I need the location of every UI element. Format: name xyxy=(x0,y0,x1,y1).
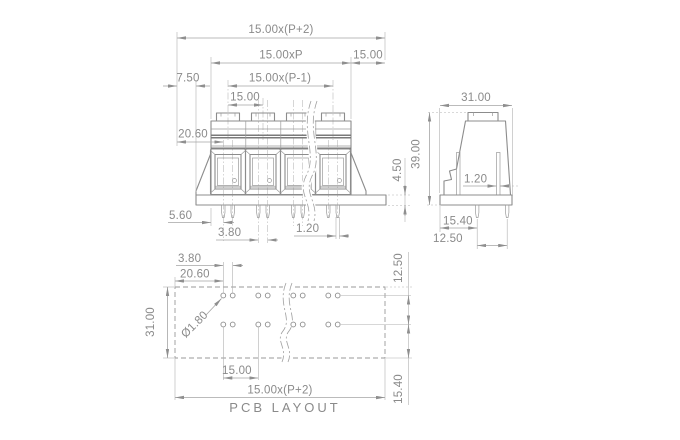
dim-pcb-depth: 31.00 xyxy=(145,307,157,337)
sheet-background xyxy=(0,0,680,440)
dim-pcb-hole-pair-spacing: 3.80 xyxy=(178,253,201,265)
dim-front-pin-pair-spacing: 3.80 xyxy=(218,227,241,239)
dim-front-pin-width: 1.20 xyxy=(296,223,319,235)
drawing-sheet: 15.00x(P+2) 15.00xP 15.00 7.50 15.00x(P-… xyxy=(0,0,680,440)
dim-pcb-row-to-edge: 15.40 xyxy=(393,374,405,404)
dim-side-pin-to-front: 12.50 xyxy=(433,233,463,245)
dim-front-overall-width: 15.00x(P+2) xyxy=(248,24,313,36)
dim-pcb-row-spacing: 12.50 xyxy=(393,253,405,283)
dim-front-base-offset: 7.50 xyxy=(176,73,199,85)
dim-front-first-pin-offset: 20.60 xyxy=(178,129,208,141)
pcb-layout-caption: PCB LAYOUT xyxy=(229,400,340,415)
dim-front-edge-margin: 15.00 xyxy=(353,50,383,62)
technical-drawing-canvas: 15.00x(P+2) 15.00xP 15.00 7.50 15.00x(P-… xyxy=(0,0,680,440)
dim-pcb-first-hole-offset: 20.60 xyxy=(180,269,210,281)
dim-side-pin-width: 1.20 xyxy=(464,174,487,186)
dim-front-body-to-pin: 5.60 xyxy=(169,210,192,222)
dim-front-base-height: 4.50 xyxy=(392,158,404,181)
dim-side-height: 39.00 xyxy=(411,139,423,169)
dim-pcb-overall-width: 15.00x(P+2) xyxy=(247,385,312,397)
dim-front-body-width: 15.00xP xyxy=(259,50,303,62)
dim-pcb-pitch: 15.00 xyxy=(222,365,252,377)
dim-front-pitch: 15.00 xyxy=(230,92,260,104)
dim-front-pole-span: 15.00x(P-1) xyxy=(249,73,311,85)
dim-side-pin-row-span: 15.40 xyxy=(443,216,473,228)
dim-side-depth: 31.00 xyxy=(461,92,491,104)
